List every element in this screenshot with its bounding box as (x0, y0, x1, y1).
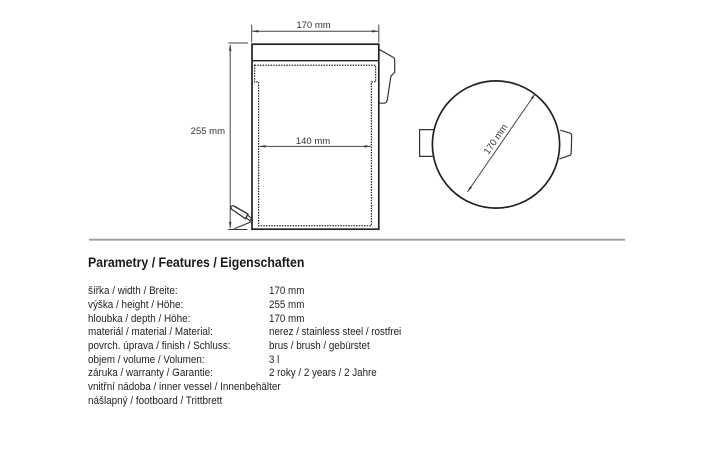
svg-text:255 mm: 255 mm (191, 126, 225, 137)
svg-text:170 mm: 170 mm (296, 20, 330, 31)
svg-text:140 mm: 140 mm (296, 136, 330, 147)
svg-text:170 mm: 170 mm (482, 122, 511, 157)
